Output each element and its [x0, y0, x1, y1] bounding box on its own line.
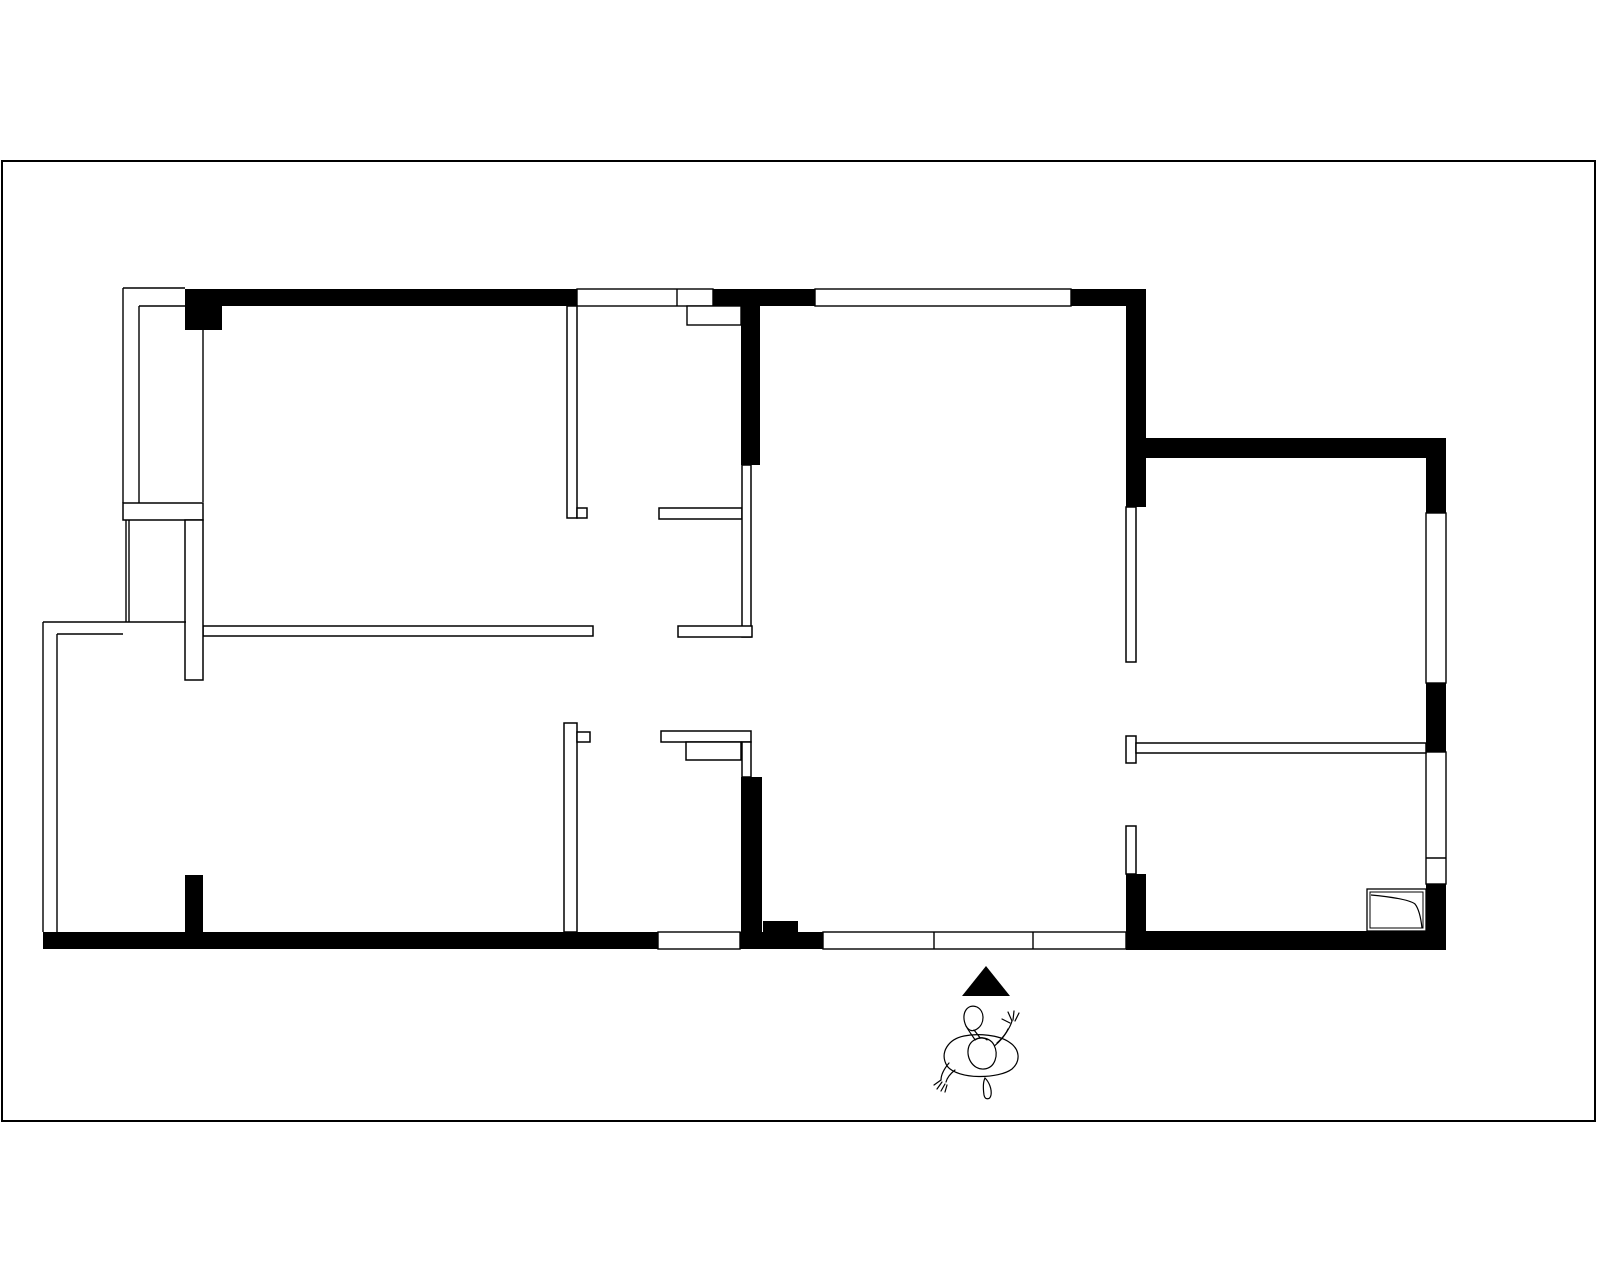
east-exterior-wall-b: [1426, 683, 1446, 752]
lower-partition-jamb: [577, 732, 590, 742]
window-openings: [577, 289, 1446, 949]
south-wall-center-segment: [740, 932, 823, 949]
east-hall-partition-lower: [1126, 826, 1136, 874]
person-stroke-17: [945, 1085, 947, 1092]
east-room-north-wall: [1145, 438, 1446, 458]
interior-column-west: [185, 875, 203, 932]
north-window-sill: [687, 306, 741, 325]
south-window-1: [658, 932, 740, 949]
southeast-room-wall: [1136, 743, 1426, 753]
entry-door-band: [823, 932, 1126, 949]
bedroom1-partition: [567, 306, 577, 518]
east-hall-jamb: [1126, 736, 1136, 763]
person-stroke-9: [1002, 1019, 1010, 1023]
thin-partition-walls: [123, 306, 1426, 932]
north-wall-center-segment: [713, 289, 815, 306]
kitchen-stub: [661, 731, 751, 742]
lower-partition: [564, 723, 577, 932]
south-wall-east-segment: [1146, 931, 1446, 950]
north-window-1: [577, 289, 713, 306]
construction-lines: [43, 288, 203, 932]
east-hall-partition-upper: [1126, 507, 1136, 662]
person-stroke-7: [1013, 1011, 1014, 1020]
person-stroke-8: [1015, 1013, 1019, 1021]
center-partition-lower: [741, 777, 762, 932]
balcony-pier: [185, 520, 203, 680]
person-stroke-13: [946, 1070, 955, 1082]
kitchen-stub-step: [686, 742, 741, 760]
bedroom1-partition-jamb: [577, 508, 587, 518]
entrance-arrow: [962, 966, 1010, 996]
hall-stub-lower: [678, 626, 752, 637]
person-stroke-6: [1008, 1012, 1012, 1021]
balcony-divider-band: [123, 503, 203, 520]
person-figure: [934, 1006, 1019, 1099]
person-stroke-18: [983, 1078, 991, 1099]
hall-stub-upper: [659, 508, 742, 519]
entry-corner-column: [1126, 874, 1146, 950]
south-wall-west-segment: [43, 932, 658, 949]
west-room-divider: [203, 626, 593, 636]
north-wall-east-segment: [1071, 289, 1146, 306]
center-partition-upper: [741, 306, 760, 465]
entrance-triangle: [962, 966, 1010, 996]
person-stroke-16: [941, 1084, 945, 1091]
east-window-1: [1426, 513, 1446, 683]
floor-plan-canvas: [0, 0, 1600, 1280]
hall-partition-mid: [742, 465, 751, 637]
north-wall-west-segment: [185, 289, 577, 306]
door-panel-symbol: [1367, 889, 1426, 931]
bedroom-east-partition: [1126, 306, 1146, 507]
kitchen-partition-link: [742, 742, 751, 777]
north-wall-corner-column: [185, 289, 222, 330]
east-window-2: [1426, 752, 1446, 884]
drawing-sheet: [0, 0, 1600, 1280]
north-window-2: [815, 289, 1071, 306]
south-wall-step: [763, 921, 798, 932]
east-exterior-wall-a: [1426, 458, 1446, 513]
person-stroke-10: [968, 1038, 996, 1069]
